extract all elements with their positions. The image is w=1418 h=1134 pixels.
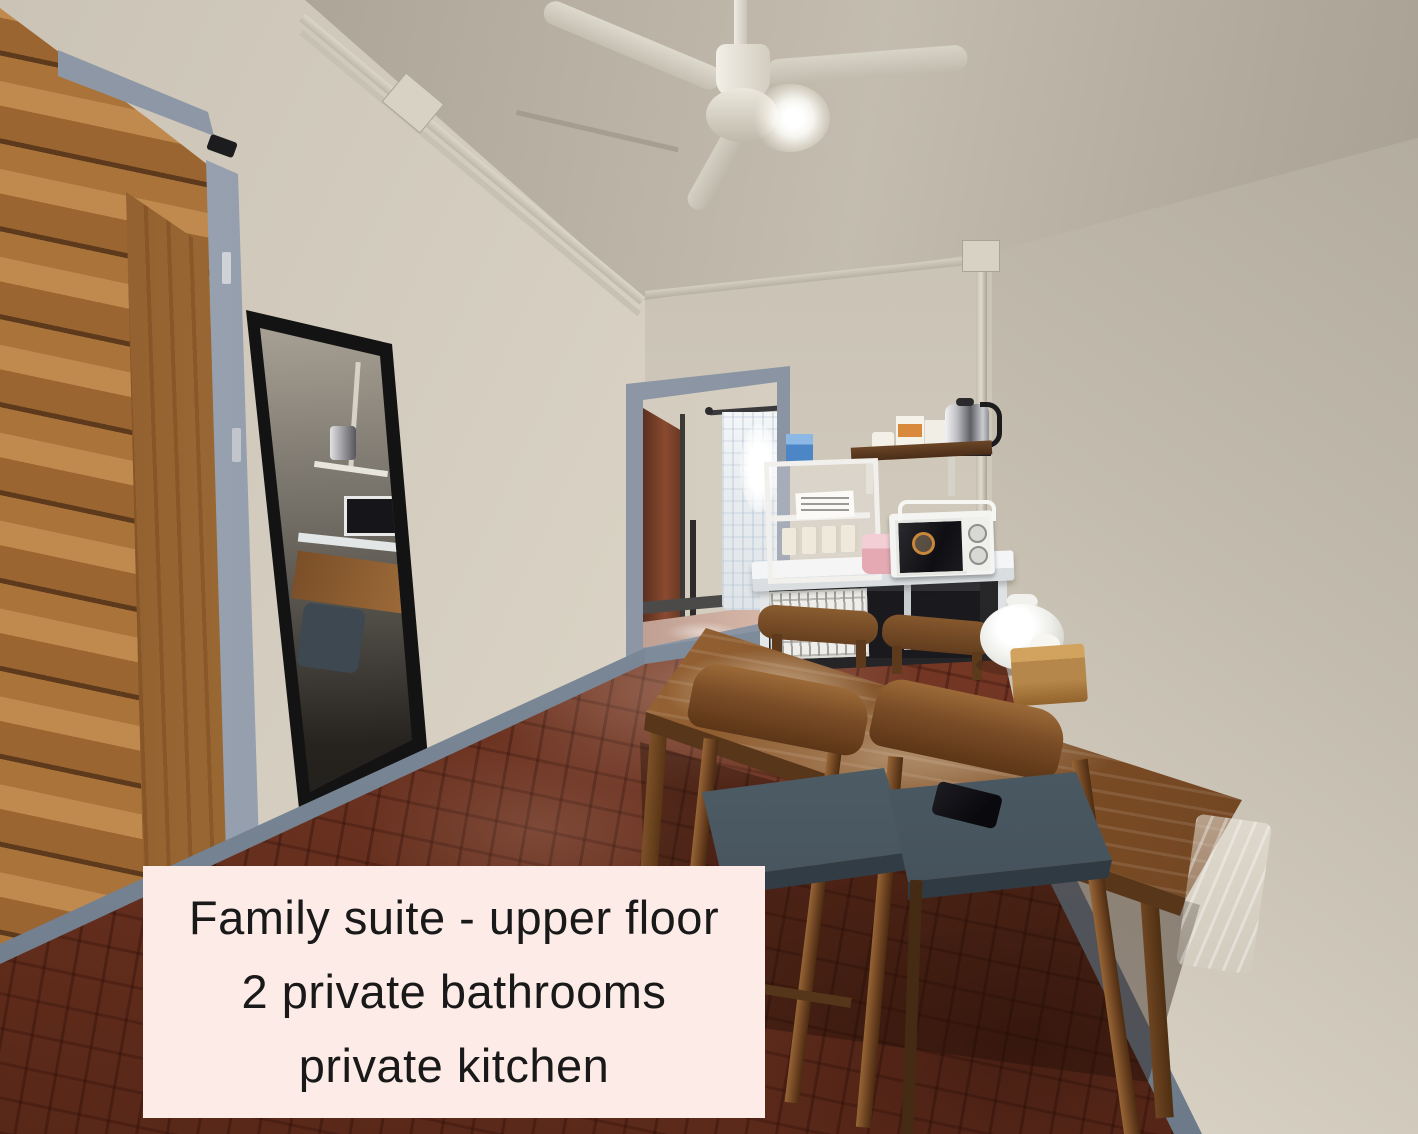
door-hinge: [232, 428, 241, 462]
junction-box: [962, 240, 1000, 272]
caption-box: Family suite - upper floor 2 private bat…: [143, 866, 765, 1118]
room-photo: Family suite - upper floor 2 private bat…: [0, 0, 1418, 1134]
kettle-lid: [956, 398, 974, 406]
microwave-dial: [968, 524, 987, 543]
mirror-reflection-kettle: [330, 426, 356, 460]
cup: [802, 527, 819, 554]
chair-post: [856, 640, 866, 668]
caption-line-3: private kitchen: [299, 1029, 610, 1103]
chair-post: [892, 646, 902, 674]
microwave-dial: [969, 546, 988, 565]
wooden-tissue-box: [1010, 643, 1088, 706]
cup: [822, 526, 839, 553]
microwave-sticker: [912, 532, 935, 555]
rack-label-text: [801, 497, 849, 513]
caption-line-1: Family suite - upper floor: [189, 881, 719, 955]
ceiling-light-glare: [750, 84, 830, 152]
inner-red-door: [643, 408, 680, 650]
cup: [782, 528, 799, 555]
supply-box-label: [898, 424, 922, 437]
white-rack-on-microwave: [898, 500, 996, 521]
curtain-rod-finial: [705, 407, 713, 415]
shelf-bracket: [948, 452, 955, 496]
caption-line-2: 2 private bathrooms: [242, 955, 667, 1029]
door-hinge: [222, 252, 231, 284]
cup: [841, 525, 858, 552]
mirror-reflection-chair: [296, 602, 366, 674]
